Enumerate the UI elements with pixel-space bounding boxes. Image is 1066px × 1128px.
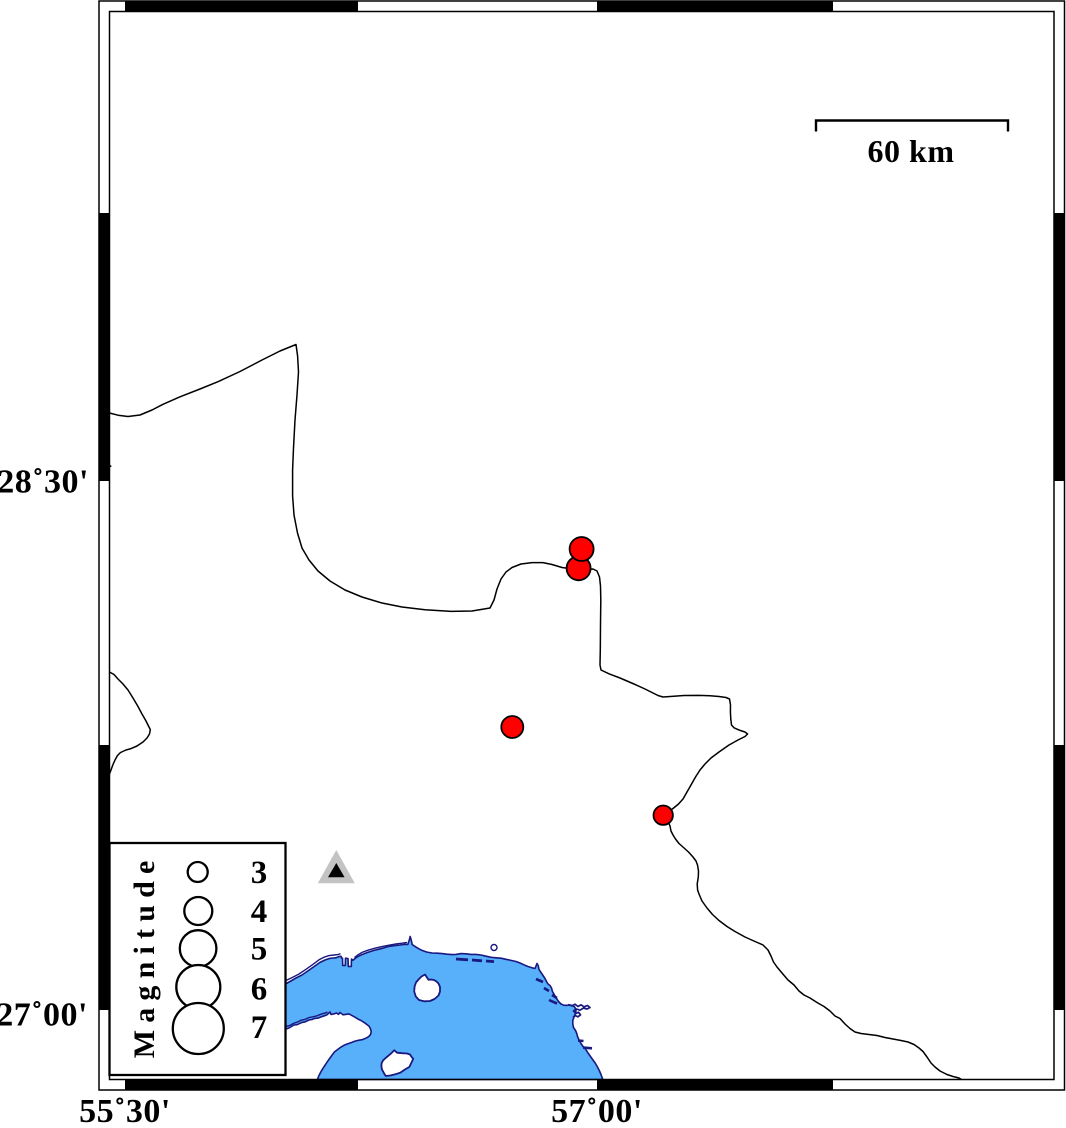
svg-text:60 km: 60 km xyxy=(868,133,955,169)
svg-text:3: 3 xyxy=(251,855,268,891)
svg-text:4: 4 xyxy=(251,894,268,930)
svg-text:Magnitude: Magnitude xyxy=(128,853,161,1058)
svg-text:6: 6 xyxy=(251,972,268,1008)
svg-text:5: 5 xyxy=(251,932,268,968)
svg-text:7: 7 xyxy=(251,1010,268,1046)
svg-text:55˚30': 55˚30' xyxy=(79,1093,171,1128)
svg-text:27˚00': 27˚00' xyxy=(0,997,88,1034)
svg-text:28˚30': 28˚30' xyxy=(0,464,89,501)
svg-text:57˚00': 57˚00' xyxy=(551,1093,643,1128)
